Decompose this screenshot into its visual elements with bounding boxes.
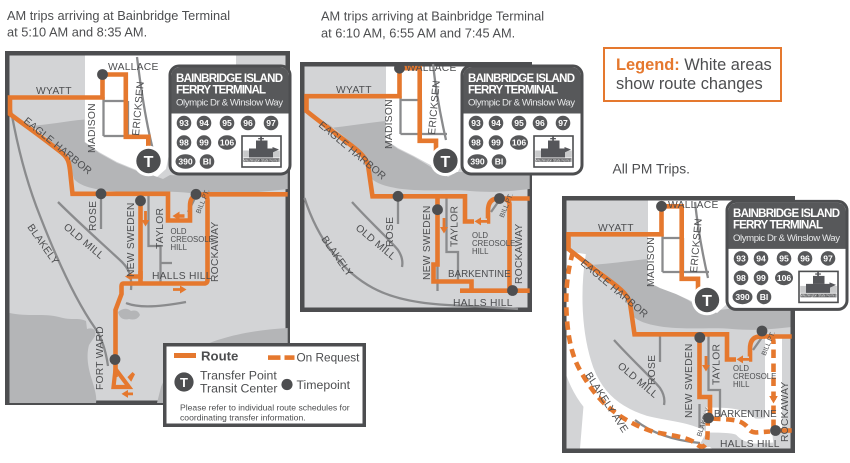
svg-text:Please refer to individual rou: Please refer to individual route schedul…	[180, 403, 350, 413]
svg-text:MADISON: MADISON	[384, 99, 395, 149]
svg-text:T: T	[144, 154, 154, 171]
svg-text:WALLACE: WALLACE	[108, 62, 159, 73]
svg-text:AM trips arriving at Bainbridg: AM trips arriving at Bainbridge Terminal	[7, 8, 230, 23]
svg-text:NEW SWEDEN: NEW SWEDEN	[126, 202, 137, 277]
svg-text:On Request: On Request	[297, 351, 361, 365]
svg-text:WALLACE: WALLACE	[668, 200, 719, 211]
svg-text:ROSE: ROSE	[385, 217, 396, 247]
svg-text:All PM Trips.: All PM Trips.	[613, 162, 690, 177]
svg-text:TAYLOR: TAYLOR	[155, 208, 166, 249]
svg-text:NEW SWEDEN: NEW SWEDEN	[422, 205, 433, 280]
svg-text:TAYLOR: TAYLOR	[712, 344, 723, 385]
svg-text:Route: Route	[201, 349, 238, 364]
svg-text:TAYLOR: TAYLOR	[450, 206, 461, 247]
svg-text:ROCKAWAY: ROCKAWAY	[514, 223, 525, 284]
svg-text:AM trips arriving at Bainbridg: AM trips arriving at Bainbridge Terminal	[321, 9, 544, 24]
svg-text:Timepoint: Timepoint	[297, 378, 351, 392]
svg-text:MADISON: MADISON	[87, 103, 98, 153]
svg-text:NEW SWEDEN: NEW SWEDEN	[684, 343, 695, 418]
svg-text:T: T	[180, 375, 188, 390]
svg-text:HALLS HILL: HALLS HILL	[720, 439, 780, 450]
svg-text:WYATT: WYATT	[36, 86, 72, 97]
svg-text:WYATT: WYATT	[598, 223, 634, 234]
svg-text:at 5:10 AM and 8:35 AM.: at 5:10 AM and 8:35 AM.	[7, 25, 147, 40]
svg-text:Legend: White areas: Legend: White areas	[616, 56, 772, 74]
svg-text:HALLS HILL: HALLS HILL	[453, 298, 513, 309]
svg-text:HALLS HILL: HALLS HILL	[152, 271, 212, 282]
svg-text:HILL: HILL	[171, 243, 188, 252]
svg-text:T: T	[441, 154, 451, 171]
svg-text:T: T	[702, 293, 712, 310]
svg-text:BARKENTINE: BARKENTINE	[714, 409, 777, 420]
svg-text:HILL: HILL	[733, 380, 750, 389]
svg-text:show route changes: show route changes	[616, 75, 763, 93]
svg-text:WALLACE: WALLACE	[406, 63, 457, 74]
svg-text:FORT WARD: FORT WARD	[95, 326, 106, 390]
svg-text:Transfer Point: Transfer Point	[200, 369, 277, 383]
svg-text:Transit Center: Transit Center	[200, 382, 277, 396]
svg-text:MADISON: MADISON	[646, 237, 657, 287]
svg-text:at 6:10 AM, 6:55 AM and 7:45: at 6:10 AM, 6:55 AM and 7:45 AM.	[321, 26, 515, 41]
svg-text:WYATT: WYATT	[336, 85, 372, 96]
svg-text:BARKENTINE: BARKENTINE	[448, 269, 511, 280]
svg-text:ROCKAWAY: ROCKAWAY	[780, 381, 791, 442]
svg-text:ROSE: ROSE	[88, 201, 99, 231]
svg-text:ROSE: ROSE	[647, 355, 658, 385]
svg-text:HILL: HILL	[472, 247, 489, 256]
svg-text:coordinating transfer informat: coordinating transfer information.	[180, 413, 306, 423]
